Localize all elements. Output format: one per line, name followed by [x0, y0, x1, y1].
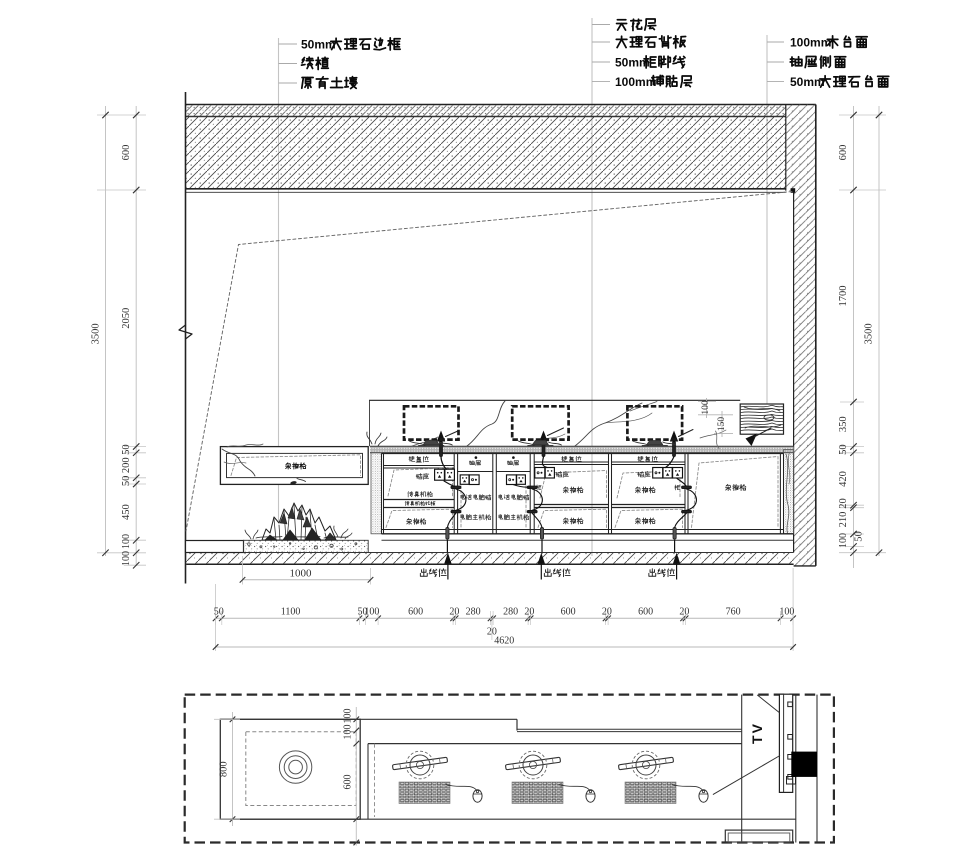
- svg-text:350: 350: [838, 416, 849, 432]
- svg-text:100: 100: [121, 551, 132, 566]
- svg-text:50: 50: [121, 476, 132, 487]
- svg-text:600: 600: [561, 607, 576, 618]
- svg-text:600: 600: [408, 607, 423, 618]
- svg-text:1000: 1000: [290, 568, 313, 580]
- svg-text:420: 420: [838, 471, 849, 487]
- svg-text:100: 100: [343, 709, 354, 724]
- svg-text:2050: 2050: [121, 308, 132, 329]
- svg-text:100: 100: [701, 400, 711, 415]
- svg-text:TV: TV: [749, 722, 765, 744]
- svg-text:4620: 4620: [494, 636, 514, 647]
- svg-text:100mm: 100mm: [790, 35, 831, 49]
- svg-text:200: 200: [121, 457, 132, 473]
- svg-text:800: 800: [219, 761, 230, 777]
- svg-text:600: 600: [343, 775, 354, 790]
- svg-text:3500: 3500: [864, 323, 875, 344]
- svg-text:50mm: 50mm: [301, 37, 336, 51]
- svg-text:100: 100: [838, 533, 849, 548]
- svg-text:760: 760: [726, 607, 741, 618]
- svg-text:100: 100: [779, 607, 794, 618]
- svg-text:450: 450: [121, 504, 132, 520]
- svg-text:100mm: 100mm: [615, 75, 656, 89]
- svg-text:20: 20: [524, 607, 534, 618]
- svg-text:600: 600: [838, 145, 849, 161]
- svg-text:100: 100: [364, 607, 379, 618]
- svg-text:50mm: 50mm: [790, 75, 825, 89]
- svg-text:50: 50: [838, 444, 849, 455]
- svg-text:210: 210: [838, 512, 849, 528]
- svg-text:280: 280: [466, 607, 481, 618]
- svg-text:600: 600: [121, 145, 132, 161]
- svg-text:3500: 3500: [91, 323, 102, 344]
- svg-text:150: 150: [717, 417, 727, 432]
- svg-text:280: 280: [503, 607, 518, 618]
- svg-text:100: 100: [121, 534, 132, 549]
- svg-text:600: 600: [638, 607, 653, 618]
- svg-text:50: 50: [854, 531, 865, 542]
- svg-text:20: 20: [838, 498, 849, 509]
- svg-text:20: 20: [679, 607, 689, 618]
- svg-text:50: 50: [121, 444, 132, 455]
- svg-text:20: 20: [449, 607, 459, 618]
- svg-text:1100: 1100: [281, 607, 301, 618]
- svg-text:20: 20: [602, 607, 612, 618]
- svg-text:50: 50: [214, 607, 224, 618]
- svg-text:100: 100: [343, 725, 354, 740]
- svg-text:1700: 1700: [838, 286, 849, 307]
